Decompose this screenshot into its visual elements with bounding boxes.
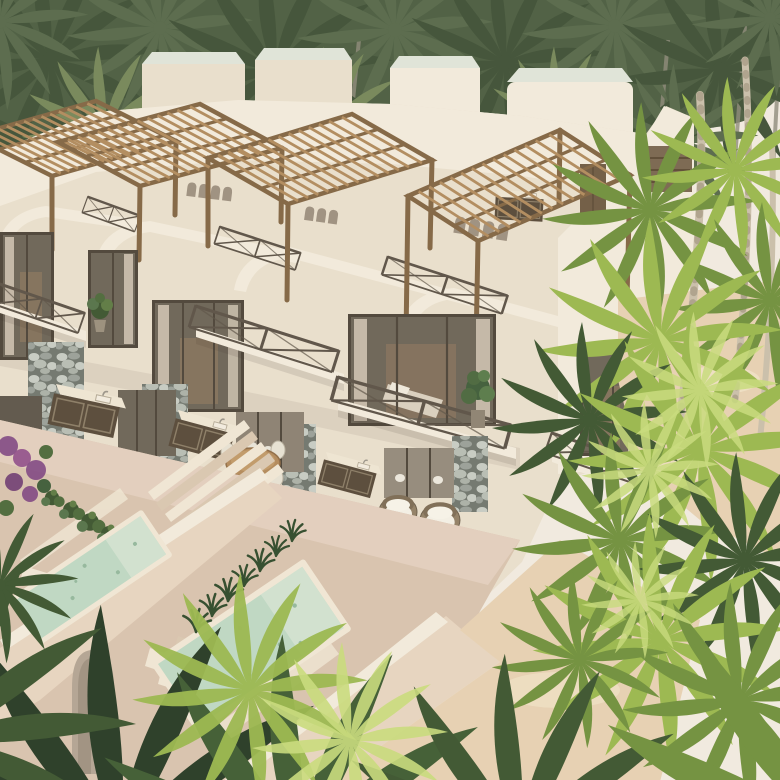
render-image: Aerial 3D render of white boutique villa… <box>0 0 780 780</box>
warm-light-overlay <box>0 0 780 780</box>
